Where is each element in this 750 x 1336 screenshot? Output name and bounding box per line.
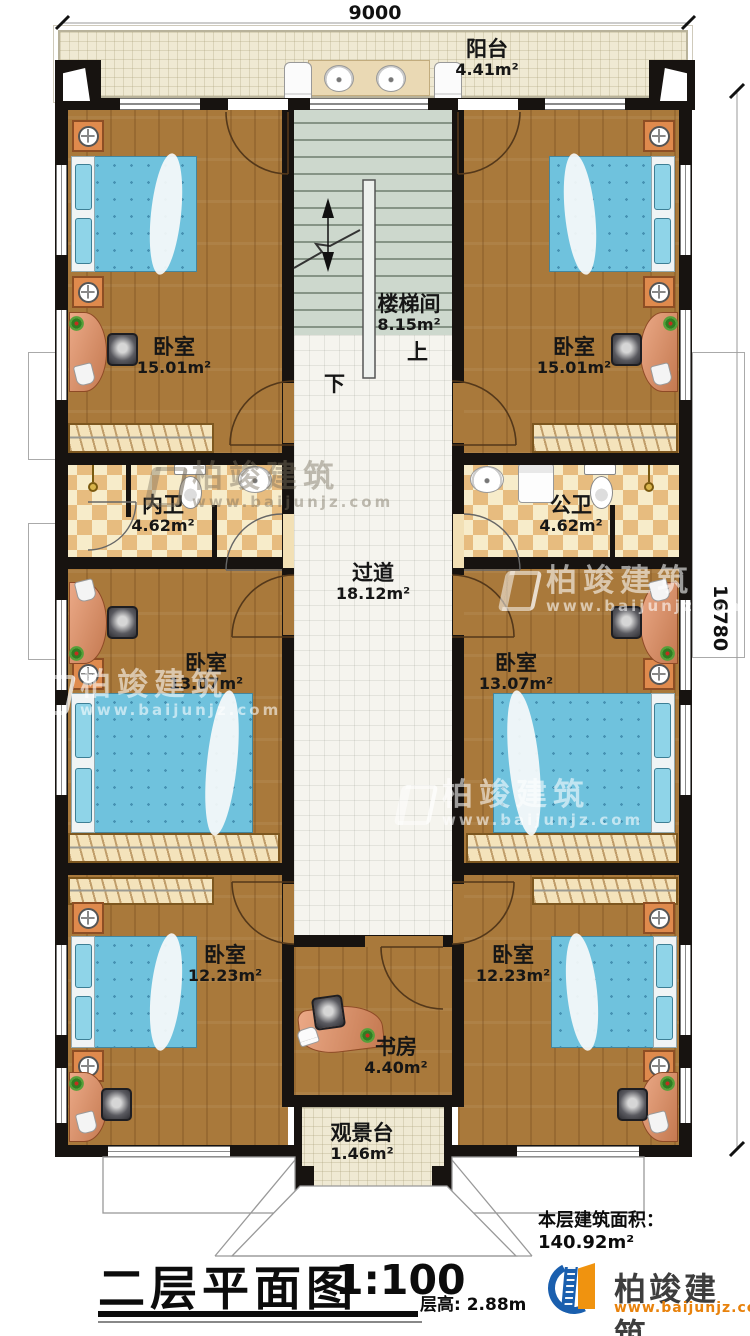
wall-divider [55, 557, 294, 569]
nightstand-lamp [643, 902, 675, 934]
logo-tower-orange [578, 1263, 595, 1309]
window [56, 1068, 67, 1123]
door-opening [453, 514, 464, 568]
wardrobe [68, 423, 214, 453]
window [120, 98, 200, 110]
toilet [584, 464, 616, 475]
window [680, 600, 691, 690]
room-label-bedroom-bottom-right: 卧室12.23m² [476, 944, 550, 984]
deck-wall [294, 1107, 302, 1169]
deck-wall [444, 1107, 452, 1169]
corridor-floor [294, 380, 452, 935]
porch-sill [452, 1157, 644, 1213]
wall-divider [452, 863, 692, 875]
room-label-study: 书房4.40m² [364, 1036, 427, 1076]
dimension-tick [682, 16, 695, 29]
left-window-bay [28, 352, 56, 460]
potted-plant [69, 1076, 84, 1091]
wall-divider [55, 453, 294, 465]
door-opening [365, 936, 443, 947]
bed [493, 693, 675, 833]
room-label-bath-inner: 内卫4.62m² [131, 494, 194, 534]
balcony-door-opening [228, 99, 288, 110]
window [680, 705, 691, 795]
window [310, 98, 428, 110]
bed [71, 156, 197, 272]
deck-pillar [432, 1166, 458, 1196]
potted-plant [69, 646, 84, 661]
room-label-balcony: 阳台4.41m² [455, 38, 518, 78]
wash-basin [376, 65, 406, 92]
door-opening [453, 575, 464, 635]
bed [71, 693, 253, 833]
room-label-corridor: 过道18.12m² [336, 562, 410, 602]
room-label-bedroom-top-left: 卧室15.01m² [137, 336, 211, 376]
office-chair [611, 606, 642, 639]
wall-divider [452, 453, 692, 465]
wardrobe [532, 877, 678, 905]
window [680, 165, 691, 255]
room-label-stairwell: 楼梯间8.15m² [377, 293, 440, 333]
window [680, 945, 691, 1035]
door-opening [453, 884, 464, 944]
wall-divider [55, 863, 294, 875]
light-pull-knob [644, 482, 654, 492]
porch-sill [103, 1157, 295, 1213]
office-chair [311, 994, 346, 1031]
door-opening [283, 884, 294, 944]
window [56, 945, 67, 1035]
nightstand-lamp [72, 276, 104, 308]
wash-basin [238, 466, 272, 493]
stair-landing-floor [294, 335, 452, 380]
office-chair [107, 606, 138, 639]
wall-divider [452, 557, 692, 569]
roof-diagonal [215, 1160, 295, 1256]
room-label-bedroom-mid-right: 卧室13.07m² [479, 652, 553, 692]
stair-down-label: 下 [324, 368, 345, 398]
floor-height-label: 层高: 2.88m [420, 1290, 526, 1315]
nightstand-lamp [72, 120, 104, 152]
bed [551, 936, 677, 1048]
door-opening [283, 383, 294, 443]
window [108, 1146, 230, 1157]
door-opening [453, 383, 464, 443]
window [680, 310, 691, 400]
dimension-width: 9000 [340, 2, 410, 24]
porch-steps [232, 1186, 516, 1256]
light-pull-cord [92, 464, 94, 482]
office-chair [611, 333, 642, 366]
nightstand-lamp [643, 276, 675, 308]
room-label-bath-public: 公卫4.62m² [539, 494, 602, 534]
dimension-tick [56, 16, 69, 29]
title-underline-thin [98, 1321, 422, 1323]
light-pull-knob [88, 482, 98, 492]
room-label-bedroom-top-right: 卧室15.01m² [537, 336, 611, 376]
bath-partition [212, 505, 217, 557]
door-opening [283, 514, 294, 568]
window [56, 705, 67, 795]
bath-partition [126, 465, 131, 517]
room-label-view-deck: 观景台1.46m² [330, 1122, 393, 1162]
nightstand-lamp [643, 120, 675, 152]
window [517, 1146, 639, 1157]
room-label-bedroom-mid-left: 卧室13.07m² [169, 652, 243, 692]
window [680, 1068, 691, 1123]
dimension-tick [730, 84, 744, 98]
floor-plan: 9000 16780 阳台4.41m² 卧室15.01m² 卧室15.01m² … [0, 0, 750, 1336]
room-label-bedroom-bottom-left: 卧室12.23m² [188, 944, 262, 984]
deck-pillar [288, 1166, 314, 1196]
light-pull-cord [648, 464, 650, 482]
office-chair [101, 1088, 132, 1121]
toilet [174, 464, 206, 475]
potted-plant [69, 316, 84, 331]
brand-website: www.baijunjz.com [614, 1300, 750, 1316]
bed [71, 936, 197, 1048]
window [56, 600, 67, 690]
floor-area-note: 本层建筑面积：140.92m² [538, 1206, 750, 1253]
title-underline-thick [98, 1311, 418, 1317]
roof-diagonal [452, 1160, 532, 1256]
wardrobe [532, 423, 678, 453]
window [56, 310, 67, 400]
left-window-bay [28, 523, 56, 660]
potted-plant [660, 1076, 675, 1091]
wardrobe [466, 833, 678, 863]
potted-plant [663, 316, 678, 331]
wardrobe [68, 877, 214, 905]
brand-logo-icon [548, 1260, 606, 1318]
wash-basin [470, 466, 504, 493]
dimension-height: 16780 [709, 585, 731, 637]
page-title: 二层平面图 [98, 1250, 358, 1319]
nightstand-lamp [72, 902, 104, 934]
window [56, 165, 67, 255]
stair-up-label: 上 [407, 336, 428, 366]
door-opening [283, 575, 294, 635]
potted-plant [660, 646, 675, 661]
dimension-tick [730, 1142, 744, 1156]
window [545, 98, 625, 110]
wall-study-bottom [282, 1095, 464, 1107]
bath-partition [610, 505, 615, 557]
office-chair [617, 1088, 648, 1121]
balcony-door-opening [458, 99, 518, 110]
wash-basin [324, 65, 354, 92]
wardrobe [68, 833, 280, 863]
bed [549, 156, 675, 272]
office-chair [107, 333, 138, 366]
